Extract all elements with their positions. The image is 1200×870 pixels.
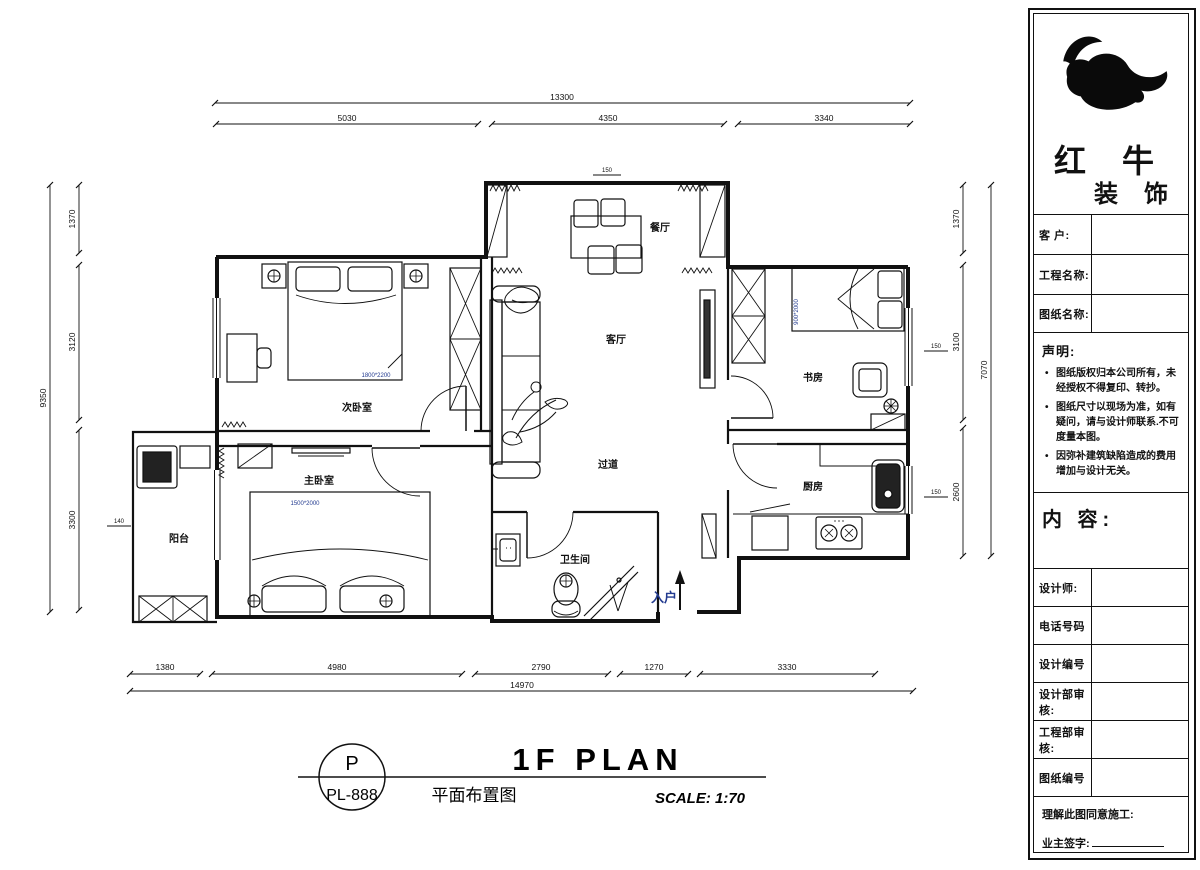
field-design-no-value — [1092, 645, 1188, 682]
chair-icon — [588, 246, 614, 274]
chair-icon — [616, 245, 642, 273]
dim-bottom-seg5: 3330 — [778, 662, 797, 672]
plant-icon — [505, 287, 539, 313]
dim-bottom-seg3: 2790 — [532, 662, 551, 672]
dim-bottom-seg4: 1270 — [645, 662, 664, 672]
room-label-bedroom2: 次卧室 — [342, 401, 372, 414]
statement-item: 图纸版权归本公司所有，未经授权不得复印、转抄。 — [1056, 366, 1182, 396]
bed-icon — [792, 267, 904, 331]
study-furniture — [732, 267, 905, 430]
washbasin-icon — [492, 534, 520, 566]
interior-walls — [217, 257, 908, 621]
field-designer-label: 设计师: — [1034, 569, 1092, 606]
room-label-living: 客厅 — [605, 333, 626, 346]
room-label-balcony: 阳台 — [169, 532, 189, 545]
decor-figure-icon — [503, 382, 568, 445]
dining-table-icon — [571, 216, 641, 258]
dim-top-overall: 13300 — [550, 92, 574, 102]
insulation-hatch — [219, 185, 712, 478]
master-furniture — [238, 444, 430, 618]
brand-suffix: 装 饰 — [1094, 174, 1178, 209]
chair-icon — [853, 363, 887, 397]
shower-icon — [584, 566, 638, 620]
bedroom2-furniture — [227, 262, 481, 410]
tv-icon — [292, 448, 350, 453]
dim-top-seg3: 3340 — [815, 113, 834, 123]
field-drawing-no-label: 图纸编号 — [1034, 759, 1092, 796]
room-label-dining: 餐厅 — [649, 221, 670, 234]
drawing-code-bottom: PL-888 — [326, 787, 378, 804]
dim-bottom-seg1: 1380 — [156, 662, 175, 672]
mini-dim-left: 140 — [114, 519, 125, 525]
room-label-master: 主卧室 — [304, 474, 334, 487]
toilet-icon — [552, 573, 580, 617]
bed-icon — [288, 262, 402, 380]
room-label-bathroom: 卫生间 — [560, 553, 590, 566]
dim-bottom-overall: 14970 — [510, 680, 534, 690]
doors — [372, 376, 777, 558]
dim-right-seg3: 2600 — [951, 482, 961, 501]
field-drawing-value — [1092, 295, 1188, 332]
dim-right-overall: 7070 — [979, 360, 989, 379]
room-label-kitchen: 厨房 — [803, 480, 823, 493]
owner-sign-label: 业主签字: — [1042, 838, 1090, 850]
tv-cabinet-icon — [700, 290, 715, 388]
dim-right-seg1: 1370 — [951, 209, 961, 228]
field-project-value — [1092, 255, 1188, 294]
drawing-scale: SCALE: 1:70 — [655, 790, 746, 807]
field-project-label: 工程名称: — [1034, 255, 1092, 294]
field-design-review-label: 设计部审核: — [1034, 683, 1092, 720]
room-labels: 餐厅 客厅 次卧室 主卧室 阳台 过道 卫生间 书房 厨房 1800*2200 … — [169, 221, 823, 566]
chair-icon — [601, 199, 625, 226]
title-block-inner: 红 牛 装 饰 客 户: 工程名称: 图纸名称: 声明: 图纸版权归本公司所有，… — [1033, 13, 1189, 853]
statement-section: 声明: 图纸版权归本公司所有，未经授权不得复印、转抄。 图纸尺寸以现场为准，如有… — [1034, 332, 1188, 492]
drawing-title-en: 1F PLAN — [512, 742, 683, 777]
bed-size-label: 1800*2200 — [361, 373, 391, 379]
drawing-title-cn: 平面布置图 — [432, 786, 517, 805]
bed-size-label: 1500*2000 — [290, 501, 320, 507]
entrance-label: 入户 — [651, 590, 677, 605]
field-eng-review-value — [1092, 721, 1188, 758]
bed-size-label: 900*2000 — [794, 298, 800, 324]
dim-left-overall: 9350 — [38, 388, 48, 407]
field-customer-value — [1092, 215, 1188, 254]
field-design-review-value — [1092, 683, 1188, 720]
field-eng-review-label: 工程部审核: — [1034, 721, 1092, 758]
field-drawing-label: 图纸名称: — [1034, 295, 1092, 332]
mini-dim-right-lower: 150 — [931, 490, 942, 496]
drawing-title-bar: P PL-888 1F PLAN 平面布置图 SCALE: 1:70 — [298, 742, 766, 810]
dining-furniture — [487, 185, 725, 274]
company-logo: 红 牛 装 饰 — [1034, 14, 1188, 214]
signature-line — [1092, 837, 1164, 847]
chair-icon — [574, 200, 598, 227]
dimension-lines — [47, 100, 994, 694]
signature-section: 理解此图同意施工: 业主签字: — [1034, 796, 1188, 852]
dim-bottom-seg2: 4980 — [328, 662, 347, 672]
sink-icon — [872, 460, 904, 512]
title-block: 红 牛 装 饰 客 户: 工程名称: 图纸名称: 声明: 图纸版权归本公司所有，… — [1028, 8, 1196, 860]
dim-left-seg1: 1370 — [67, 209, 77, 228]
drawing-sheet: 13300 5030 4350 3340 1380 4980 2790 1270… — [0, 0, 1200, 870]
statement-item: 因弥补建筑缺陷造成的费用增加与设计无关。 — [1056, 449, 1182, 479]
dim-top-seg2: 4350 — [599, 113, 618, 123]
statement-title: 声明: — [1042, 341, 1182, 360]
field-phone-label: 电话号码 — [1034, 607, 1092, 644]
drawing-code-top: P — [345, 753, 358, 775]
mini-dim-top: 150 — [602, 168, 613, 174]
agree-label: 理解此图同意施工: — [1042, 806, 1182, 822]
bull-logo-icon — [1034, 14, 1190, 134]
content-section-label: 内 容: — [1034, 492, 1188, 568]
mini-dim-right-upper: 150 — [931, 344, 942, 350]
floor-plan-canvas: 13300 5030 4350 3340 1380 4980 2790 1270… — [0, 0, 1030, 870]
dim-right-seg2: 3100 — [951, 332, 961, 351]
living-furniture — [490, 286, 715, 478]
room-label-study: 书房 — [803, 371, 823, 384]
field-phone-value — [1092, 607, 1188, 644]
field-drawing-no-value — [1092, 759, 1188, 796]
entrance-marker: 入户 — [651, 570, 685, 610]
kitchen-cabinet-icon — [750, 504, 790, 550]
field-design-no-label: 设计编号 — [1034, 645, 1092, 682]
stove-icon — [816, 517, 862, 549]
room-label-corridor: 过道 — [598, 458, 618, 471]
dim-left-seg2: 3120 — [67, 332, 77, 351]
dim-top-seg1: 5030 — [338, 113, 357, 123]
statement-item: 图纸尺寸以现场为准，如有疑问，请与设计师联系.不可度量本图。 — [1056, 400, 1182, 445]
dresser-icon — [227, 334, 257, 382]
kitchen-furniture — [733, 445, 908, 550]
sofa-icon — [490, 286, 540, 478]
bathroom-furniture — [492, 534, 638, 620]
field-customer-label: 客 户: — [1034, 215, 1092, 254]
field-designer-value — [1092, 569, 1188, 606]
dim-left-seg3: 3300 — [67, 510, 77, 529]
